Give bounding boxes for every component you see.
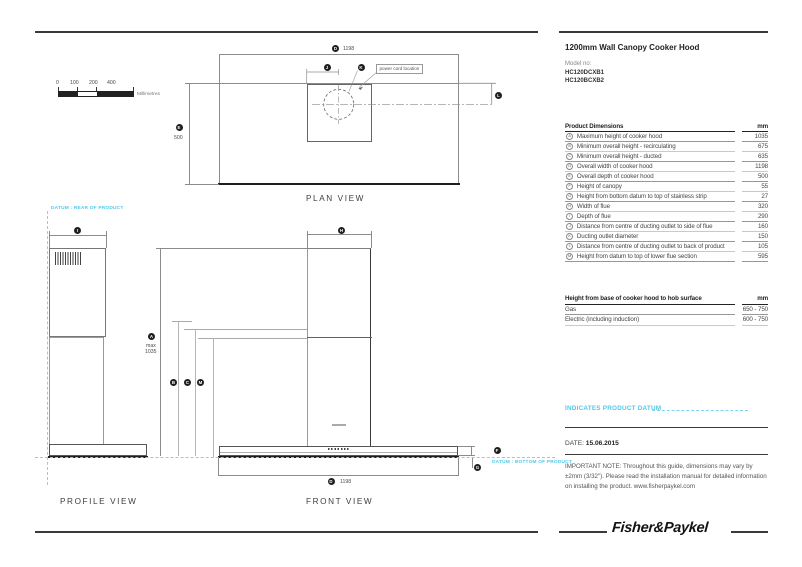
dim-key-badge: J: [566, 223, 573, 230]
top-rule-right: [559, 31, 768, 33]
model-number-1: HC120DCXB1: [565, 70, 604, 76]
plan-dim-d-ext-left: [219, 54, 220, 83]
front-dim-c-ext: [184, 329, 307, 330]
dim-key-badge: M: [566, 253, 573, 260]
plan-view-label: PLAN VIEW: [306, 194, 365, 203]
spec-sheet-page: 0 100 200 400 Millimetres D 1198 E 500 J…: [0, 0, 802, 567]
profile-datum-line: [47, 211, 48, 485]
scale-tick-400: 400: [107, 80, 116, 86]
table-row: CMinimum overall height - ducted635: [565, 152, 768, 162]
marker-m-front: M: [197, 379, 204, 386]
front-dim-d-ext-right: [458, 457, 459, 475]
dim-label: Ducting outlet diameter: [577, 233, 638, 240]
dim-key-badge: B: [566, 143, 573, 150]
product-dimensions-table: Product Dimensions mm AMaximum height of…: [565, 122, 768, 262]
marker-h-front: H: [338, 227, 345, 234]
table-row: Electric (including induction)600 - 750: [565, 315, 768, 326]
front-dim-m-ext: [198, 338, 307, 339]
plan-front-edge: [218, 183, 460, 185]
profile-flue-lower: [49, 337, 104, 444]
table-title: Product Dimensions: [565, 122, 735, 132]
scale-tick-0: 0: [56, 80, 59, 86]
dim-key-badge: G: [566, 193, 573, 200]
front-datum-label: DATUM : BOTTOM OF PRODUCT: [492, 460, 572, 465]
profile-dim-i-line: [49, 235, 107, 236]
hob-label: Electric (including induction): [565, 316, 639, 323]
front-dim-f-line: [471, 446, 472, 457]
dim-label: Overall width of cooker hood: [577, 163, 653, 170]
dim-value: 27: [742, 192, 768, 202]
model-number-2: HC120BCXB2: [565, 78, 604, 84]
front-dim-d-value: 1198: [340, 479, 351, 485]
dim-value: 105: [742, 242, 768, 252]
table-body: AMaximum height of cooker hood1035 BMini…: [565, 132, 768, 262]
table-row: DOverall width of cooker hood1198: [565, 162, 768, 172]
scale-tick-100: 100: [70, 80, 79, 86]
important-note: IMPORTANT NOTE: Throughout this guide, d…: [565, 462, 767, 493]
dim-value: 290: [742, 212, 768, 222]
profile-datum-label: DATUM : REAR OF PRODUCT: [51, 206, 123, 211]
dim-value: 1035: [742, 132, 768, 142]
scale-tick-200: 200: [89, 80, 98, 86]
marker-k-plan: K: [358, 64, 365, 71]
dim-label: Width of flue: [577, 203, 610, 210]
date-value: 15.06.2015: [586, 440, 619, 447]
dim-label: Distance from centre of ducting outlet t…: [577, 223, 713, 230]
power-cord-leader: [359, 72, 377, 88]
hob-value: 600 - 750: [742, 315, 768, 326]
page-title: 1200mm Wall Canopy Cooker Hood: [565, 43, 699, 52]
scale-bar: [58, 91, 134, 97]
marker-f-front: F: [494, 447, 501, 454]
hob-value: 650 - 750: [742, 305, 768, 316]
marker-j-plan: J: [324, 64, 331, 71]
marker-b-front: B: [170, 379, 177, 386]
table-header-row: Product Dimensions mm: [565, 122, 768, 132]
bottom-rule-left: [35, 531, 538, 533]
front-dim-a-line: [160, 248, 161, 456]
dim-label: Height of canopy: [577, 183, 622, 190]
table-row: MHeight from datum to top of lower flue …: [565, 252, 768, 262]
table-row: IDepth of flue290: [565, 212, 768, 222]
dim-value: 500: [742, 172, 768, 182]
indicates-datum-sample-line: [652, 410, 748, 411]
dim-key-badge: C: [566, 153, 573, 160]
front-dim-h-ext-right: [371, 231, 372, 248]
dim-key-badge: A: [566, 133, 573, 140]
dim-value: 150: [742, 232, 768, 242]
dim-label: Maximum height of cooker hood: [577, 133, 662, 140]
front-flue-brand-mark: [332, 424, 346, 426]
profile-canopy: [49, 444, 147, 456]
marker-e-plan: E: [176, 124, 183, 131]
table-header-row: Height from base of cooker hood to hob s…: [565, 294, 768, 305]
plan-dim-e-ext-bottom: [185, 184, 219, 185]
front-dim-f-ext-top: [458, 446, 475, 447]
bottom-datum-line: [35, 457, 555, 458]
date-line: DATE: 15.06.2015: [565, 440, 619, 447]
table-unit: mm: [742, 294, 768, 305]
table-title: Height from base of cooker hood to hob s…: [565, 294, 735, 305]
table-row: EOverall depth of cooker hood500: [565, 172, 768, 182]
plan-dim-e-value: 500: [174, 135, 183, 141]
bottom-rule-mid: [559, 531, 607, 533]
plan-dim-e-ext-top: [185, 83, 219, 84]
dim-key-badge: H: [566, 203, 573, 210]
dim-key-badge: E: [566, 173, 573, 180]
front-flue: [307, 248, 371, 446]
dim-value: 160: [742, 222, 768, 232]
plan-dim-d-ext-right: [458, 54, 459, 83]
power-cord-label: power cord location: [376, 64, 423, 74]
dim-label: Overall depth of cooker hood: [577, 173, 654, 180]
front-dim-a-value: 1035: [145, 349, 157, 355]
front-dim-c-line: [195, 329, 196, 456]
marker-i-profile: I: [74, 227, 81, 234]
hob-label: Gas: [565, 306, 576, 313]
dim-label: Distance from centre of ducting outlet t…: [577, 243, 725, 250]
dim-label: Minimum overall height - ducted: [577, 153, 662, 160]
front-dim-b-ext: [172, 321, 192, 322]
dim-label: Height from bottom datum to top of stain…: [577, 193, 707, 200]
dim-value: 635: [742, 152, 768, 162]
front-dim-b-line: [178, 321, 179, 456]
hob-height-table: Height from base of cooker hood to hob s…: [565, 294, 768, 326]
front-dim-a-prefix: max: [146, 343, 156, 349]
table-row: KDucting outlet diameter150: [565, 232, 768, 242]
front-dim-d-ext-left: [218, 457, 219, 475]
dim-label: Depth of flue: [577, 213, 611, 220]
divider-rule: [565, 454, 768, 455]
divider-rule: [565, 427, 768, 428]
dim-key-badge: F: [566, 183, 573, 190]
model-no-label: Model no:: [565, 61, 591, 67]
marker-g-front: G: [474, 464, 481, 471]
dim-value: 595: [742, 252, 768, 262]
front-canopy-strip-line: [220, 452, 457, 453]
front-view-label: FRONT VIEW: [306, 497, 373, 506]
plan-dim-e-line: [189, 83, 190, 184]
top-rule-left: [35, 31, 538, 33]
marker-c-front: C: [184, 379, 191, 386]
dim-label: Minimum overall height - recirculating: [577, 143, 676, 150]
profile-dim-i-ext-right: [106, 231, 107, 248]
marker-a-front: A: [148, 333, 155, 340]
table-row: BMinimum overall height - recirculating6…: [565, 142, 768, 152]
table-body: Gas650 - 750 Electric (including inducti…: [565, 305, 768, 326]
table-row: JDistance from centre of ducting outlet …: [565, 222, 768, 232]
front-control-buttons: [328, 448, 350, 450]
dim-label: Height from datum to top of lower flue s…: [577, 253, 697, 260]
table-row: AMaximum height of cooker hood1035: [565, 132, 768, 142]
profile-dim-i-ext-left: [49, 231, 50, 248]
plan-dim-d-line: [219, 54, 459, 55]
profile-vent-grille: [55, 252, 81, 265]
table-unit: mm: [742, 122, 768, 132]
dim-key-badge: L: [566, 243, 573, 250]
dim-key-badge: I: [566, 213, 573, 220]
profile-view-label: PROFILE VIEW: [60, 497, 137, 506]
table-row: FHeight of canopy55: [565, 182, 768, 192]
marker-l-plan: L: [495, 92, 502, 99]
front-dim-a-ext-top: [156, 248, 307, 249]
table-row: Gas650 - 750: [565, 305, 768, 316]
front-dim-h-ext-left: [307, 231, 308, 248]
table-row: GHeight from bottom datum to top of stai…: [565, 192, 768, 202]
date-label: DATE:: [565, 440, 584, 447]
dim-value: 320: [742, 202, 768, 212]
dim-value: 55: [742, 182, 768, 192]
front-dim-m-line: [213, 338, 214, 457]
plan-dim-d-value: 1198: [343, 46, 354, 52]
marker-d-front: D: [328, 478, 335, 485]
dim-key-badge: D: [566, 163, 573, 170]
indicates-datum-label: INDICATES PRODUCT DATUM: [565, 405, 661, 412]
front-flue-section-line: [307, 337, 372, 338]
marker-d-plan: D: [332, 45, 339, 52]
front-dim-h-line: [307, 234, 372, 235]
dim-value: 675: [742, 142, 768, 152]
scale-unit-label: Millimetres: [137, 92, 160, 97]
dim-value: 1198: [742, 162, 768, 172]
front-dim-d-line: [218, 475, 459, 476]
dim-key-badge: K: [566, 233, 573, 240]
table-row: LDistance from centre of ducting outlet …: [565, 242, 768, 252]
fisher-paykel-logo: Fisher&Paykel: [611, 520, 708, 536]
front-dim-g-line: [472, 457, 473, 468]
table-row: HWidth of flue320: [565, 202, 768, 212]
bottom-rule-right: [731, 531, 768, 533]
marker-k-leader: [349, 71, 358, 92]
